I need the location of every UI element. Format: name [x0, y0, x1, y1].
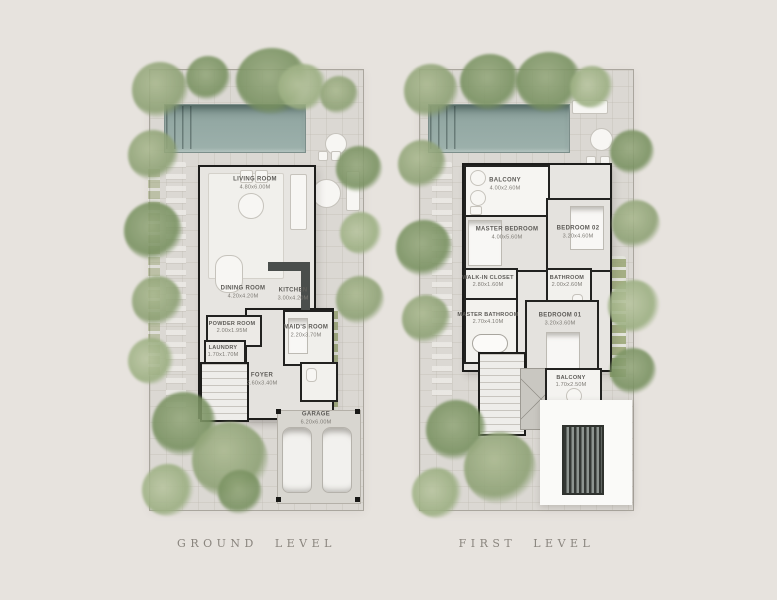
sofa [290, 174, 307, 230]
outdoor-chair [318, 151, 328, 161]
room-dims: 4.20x4.20M [221, 293, 266, 300]
room-label-living-room: LIVING ROOM 4.80x6.00M [233, 177, 277, 192]
tree [396, 220, 452, 276]
outdoor-dining-table [312, 179, 341, 208]
room-dims: 3.20x3.60M [539, 320, 582, 327]
room-name: DINING ROOM [221, 286, 266, 292]
room-label-laundry: LAUNDRY 1.70x1.70M [208, 345, 239, 359]
tree [128, 338, 174, 384]
room-name: GARAGE [302, 412, 330, 418]
room-name: POWDER ROOM [209, 321, 256, 327]
toilet [306, 368, 317, 382]
ground-level-caption: GROUND LEVEL [150, 537, 363, 550]
room-dims: 2.80x1.60M [462, 282, 514, 289]
tree [218, 470, 262, 514]
pergola-post [355, 409, 360, 414]
tree [186, 56, 230, 100]
tree [404, 64, 458, 118]
floor-plan-sheet: LIVING ROOM 4.80x6.00M DINING ROOM 4.20x… [0, 0, 777, 600]
room-label-foyer: FOYER 2.60x3.40M [247, 373, 278, 388]
room-label-maids-room: MAID'S ROOM 2.20x3.70M [284, 325, 328, 340]
room-label-bathroom: BATHROOM 2.00x2.60M [550, 275, 584, 289]
room-label-bedroom-02: BEDROOM 02 3.20x4.60M [557, 226, 600, 241]
room-dims: 4.00x2.60M [489, 185, 521, 192]
room-name: BEDROOM 01 [539, 313, 582, 319]
room-label-walk-in-closet: WALK-IN CLOSET 2.80x1.60M [462, 275, 514, 289]
room-label-master-bedroom: MASTER BEDROOM 4.00x5.60M [476, 227, 539, 242]
pergola-post [355, 497, 360, 502]
tree [340, 212, 382, 254]
tree [128, 130, 178, 180]
room-dims: 2.70x4.10M [457, 319, 518, 326]
tree [336, 276, 384, 324]
tree [336, 146, 382, 192]
tree [320, 76, 358, 114]
tree [610, 130, 654, 174]
room-label-balcony-rear: BALCONY 1.70x2.50M [556, 375, 587, 389]
stepping-path [432, 162, 452, 402]
room-name: BALCONY [556, 375, 585, 381]
tree [132, 276, 182, 326]
room-dims: 3.20x4.60M [557, 233, 600, 240]
balcony-table [470, 206, 482, 215]
roof-vent-grille [562, 425, 604, 495]
tree [460, 54, 520, 110]
room-dims: 1.70x2.50M [556, 382, 587, 389]
tree [398, 140, 446, 188]
room-name: LAUNDRY [209, 345, 238, 351]
kitchen-counter [268, 262, 310, 271]
car [282, 427, 312, 493]
balcony-chair [470, 190, 486, 206]
room-label-dining-room: DINING ROOM 4.20x4.20M [221, 286, 266, 301]
pergola-post [276, 409, 281, 414]
first-level-plan: BALCONY 4.00x2.60M MASTER BEDROOM 4.00x5… [420, 70, 633, 510]
room-name: BALCONY [489, 178, 521, 184]
tree [142, 464, 194, 516]
pergola-post [276, 497, 281, 502]
room-dims: 2.00x2.60M [550, 282, 584, 289]
room-dims: 4.00x5.60M [476, 234, 539, 241]
room-name: MASTER BEDROOM [476, 227, 539, 233]
tree [570, 66, 614, 108]
room-label-kitchen: KITCHEN 3.00x4.20M [278, 288, 309, 303]
bathtub [472, 334, 508, 353]
room-label-master-bathroom: MASTER BATHROOM 2.70x4.10M [457, 312, 518, 326]
tree [610, 348, 656, 394]
car [322, 427, 352, 493]
room-name: WALK-IN CLOSET [462, 275, 514, 281]
room-name: BATHROOM [550, 275, 584, 281]
room-dims: 1.70x1.70M [208, 352, 239, 359]
tree [402, 295, 450, 343]
room-dims: 2.20x3.70M [284, 332, 328, 339]
room-dims: 2.00x1.95M [209, 328, 256, 335]
room-label-garage: GARAGE 6.20x6.00M [301, 412, 332, 427]
tree [464, 432, 536, 504]
room-label-powder-room: POWDER ROOM 2.00x1.95M [209, 321, 256, 335]
room-dims: 6.20x6.00M [301, 419, 332, 426]
tree [412, 468, 462, 518]
tree [612, 200, 660, 248]
balcony-chair [470, 170, 486, 186]
tree [124, 202, 182, 260]
room-label-bedroom-01: BEDROOM 01 3.20x3.60M [539, 313, 582, 328]
tree [132, 62, 188, 118]
room-name: FOYER [251, 373, 273, 379]
room-name: MAID'S ROOM [284, 325, 328, 331]
room-dims: 4.80x6.00M [233, 184, 277, 191]
coffee-table [238, 193, 264, 219]
tree [608, 280, 660, 332]
room-dims: 3.00x4.20M [278, 295, 309, 302]
room-dims: 2.60x3.40M [247, 380, 278, 387]
room-name: KITCHEN [279, 288, 308, 294]
ground-level-plan: LIVING ROOM 4.80x6.00M DINING ROOM 4.20x… [150, 70, 363, 510]
guest-bath [300, 362, 338, 402]
room-name: BEDROOM 02 [557, 226, 600, 232]
room-name: MASTER BATHROOM [457, 312, 518, 318]
first-level-caption: FIRST LEVEL [420, 537, 633, 550]
room-label-balcony-front: BALCONY 4.00x2.60M [489, 178, 521, 193]
room-name: LIVING ROOM [233, 177, 277, 183]
